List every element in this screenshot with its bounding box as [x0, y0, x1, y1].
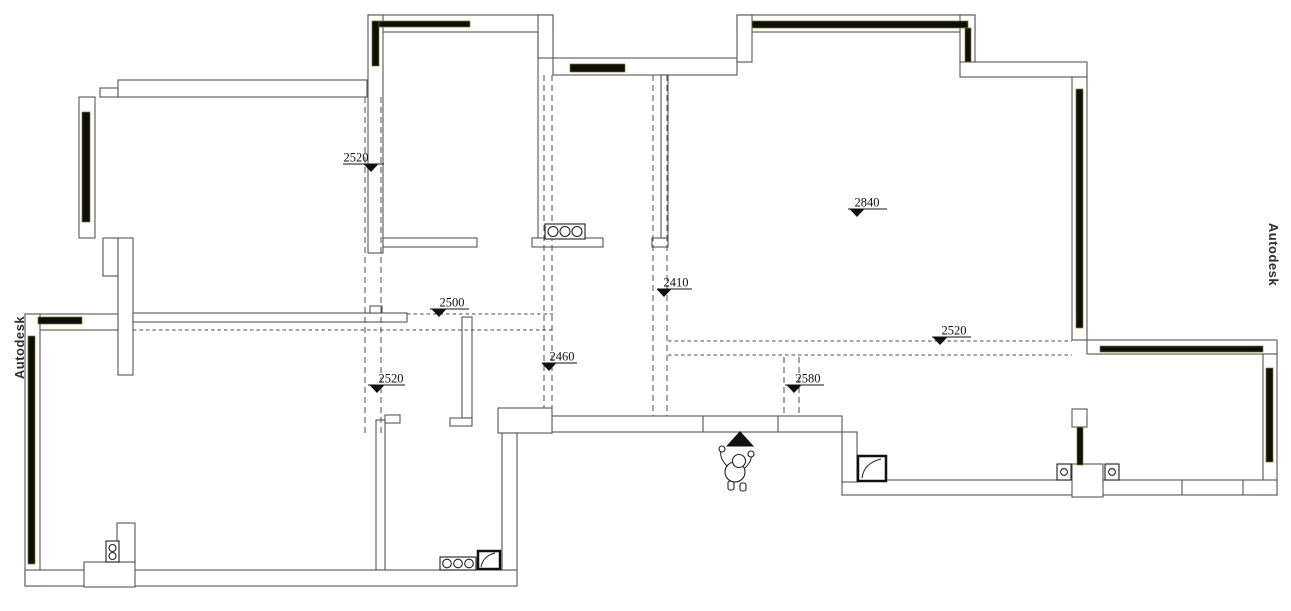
wall-segment	[462, 317, 472, 418]
window	[38, 317, 82, 324]
entry-arrow-icon	[726, 431, 754, 447]
wall-segment	[842, 480, 1277, 495]
window	[1076, 89, 1083, 328]
wall-segment	[84, 562, 135, 587]
floorplan-svg: 25202840241025002460252025802520	[0, 0, 1291, 611]
wall-segment	[100, 88, 118, 97]
window	[1077, 427, 1083, 465]
elevation-value: 2500	[440, 296, 465, 310]
window	[570, 64, 625, 72]
window	[374, 21, 470, 27]
wall-segment	[502, 433, 517, 570]
person-figure-icon	[719, 446, 754, 491]
floor-drain-icon	[478, 551, 500, 569]
wall-segment	[383, 238, 477, 247]
window	[965, 28, 971, 62]
elevation-marker-m-hallway: 2410	[657, 276, 693, 298]
elevation-markers-group: 25202840241025002460252025802520	[343, 151, 971, 394]
wall-segment	[842, 432, 857, 482]
wall-segment	[498, 408, 552, 433]
wall-segment	[450, 418, 472, 426]
wall-segment	[118, 238, 133, 375]
dashed-lines-group	[133, 75, 1072, 436]
elevation-value: 2460	[550, 350, 575, 364]
wall-segment	[1072, 464, 1103, 497]
wall-segment	[385, 415, 400, 423]
wall-segment	[103, 238, 118, 276]
elevation-marker-m-entry: 2580	[785, 372, 824, 394]
wall-segment	[538, 15, 553, 58]
autodesk-watermark-left: Autodesk	[12, 310, 27, 385]
elevation-value: 2580	[796, 372, 821, 386]
elevation-marker-m-living-room: 2840	[848, 196, 887, 218]
elevation-marker-m-corridor: 2460	[542, 350, 578, 372]
floorplan-canvas: 25202840241025002460252025802520 Autodes…	[0, 0, 1291, 611]
single-socket-icon	[1057, 464, 1071, 480]
elevation-value: 2840	[855, 196, 880, 210]
elevation-marker-m-living-room-south: 2520	[932, 324, 971, 346]
wall-segment	[117, 523, 135, 562]
hob-three-burner-icon	[545, 224, 585, 239]
walls-group	[25, 15, 1277, 587]
window	[1266, 368, 1273, 462]
window	[28, 336, 35, 564]
window	[372, 21, 379, 66]
wall-segment	[552, 416, 842, 432]
elevation-value: 2520	[344, 151, 369, 165]
elevation-value: 2410	[664, 276, 689, 290]
wall-segment	[133, 313, 407, 322]
double-socket-icon	[106, 541, 119, 562]
elevation-value: 2520	[942, 324, 967, 338]
autodesk-watermark-right: Autodesk	[1266, 217, 1281, 292]
wall-segment	[960, 62, 1087, 77]
elevation-marker-m-dining-area: 2520	[368, 372, 405, 394]
window	[1100, 346, 1263, 352]
hob-three-burner-icon	[440, 557, 476, 570]
wall-segment	[737, 15, 752, 62]
window	[752, 21, 968, 28]
wall-segment	[370, 306, 382, 313]
fixtures-group	[106, 224, 1119, 570]
wall-segment	[118, 80, 367, 97]
wall-segment	[376, 420, 385, 570]
wall-segment	[1072, 409, 1087, 427]
single-socket-icon	[1105, 464, 1119, 480]
window	[82, 112, 90, 222]
wall-segment	[652, 238, 668, 247]
elevation-value: 2520	[379, 372, 404, 386]
floor-drain-icon	[858, 456, 886, 481]
